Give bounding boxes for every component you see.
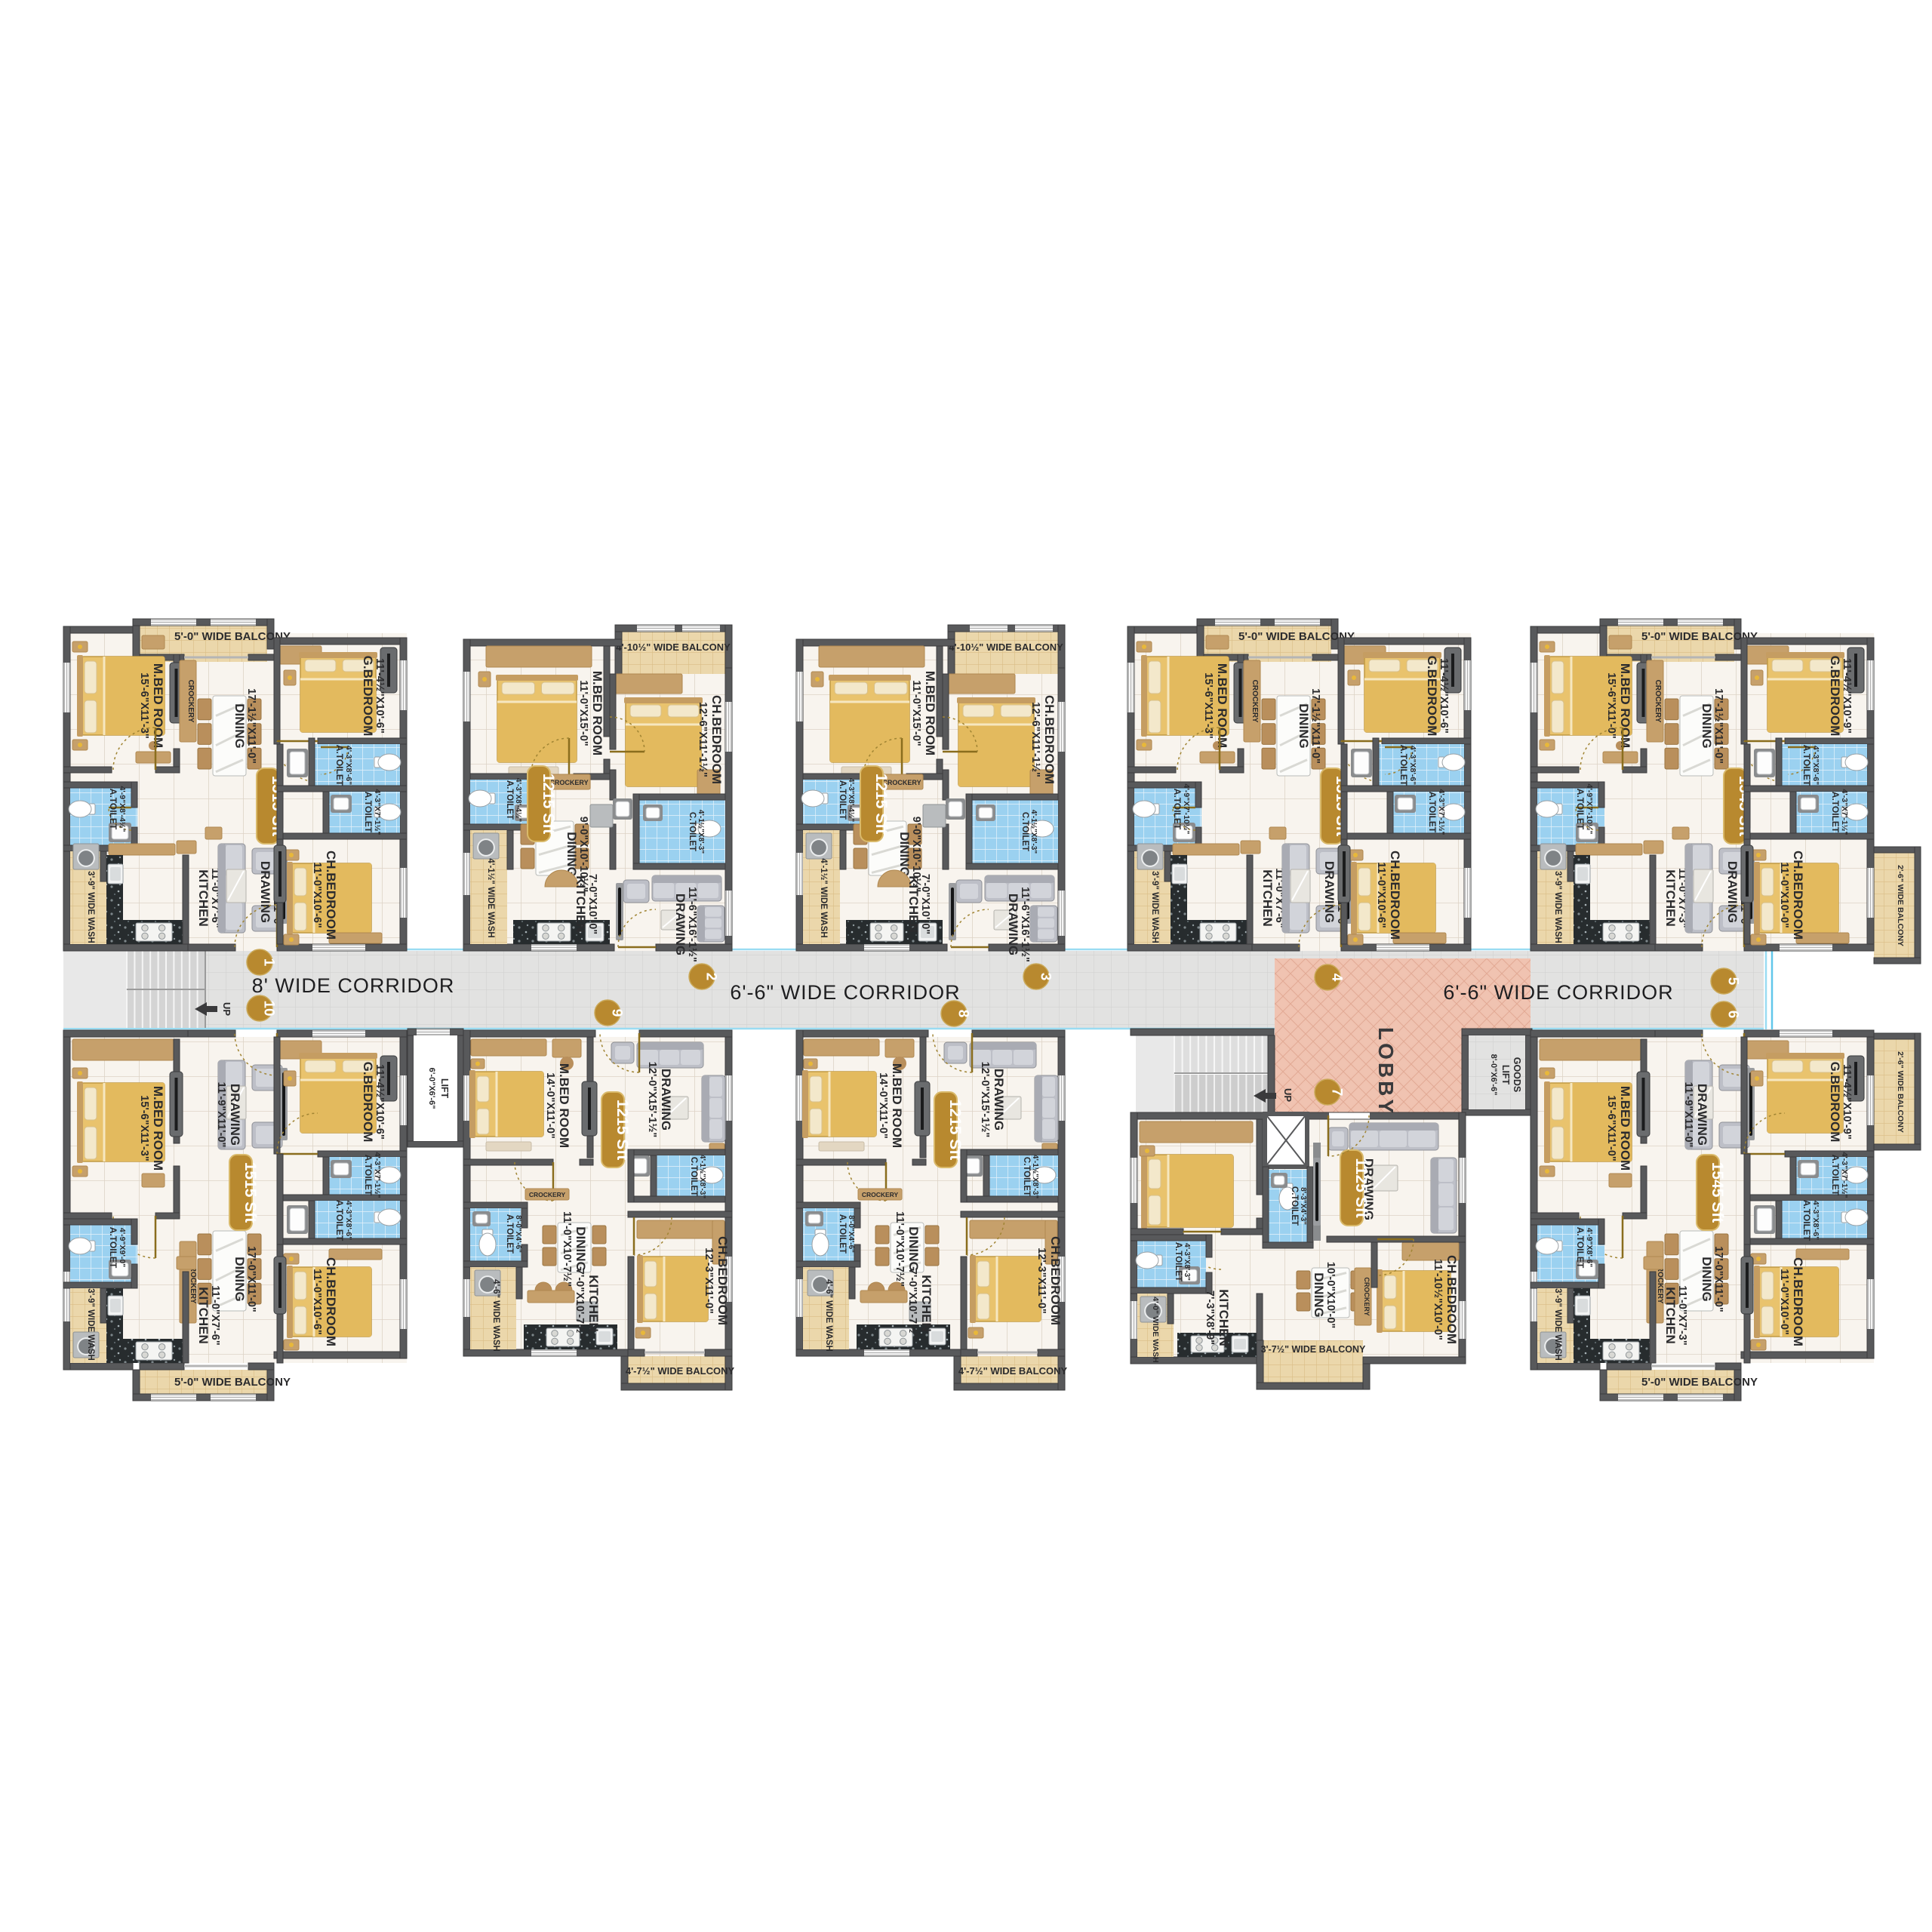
svg-text:A.TOILET: A.TOILET (108, 789, 118, 830)
svg-text:CH.BEDROOM: CH.BEDROOM (324, 1257, 338, 1346)
svg-text:5: 5 (1725, 977, 1741, 986)
svg-text:C.TOILET: C.TOILET (688, 812, 697, 851)
svg-text:8' WIDE CORRIDOR: 8' WIDE CORRIDOR (252, 974, 455, 997)
svg-text:C.TOILET: C.TOILET (1020, 812, 1029, 851)
svg-text:11'-4½"X10'-6": 11'-4½"X10'-6" (374, 658, 386, 734)
svg-text:12'-6"X11'-1½": 12'-6"X11'-1½" (697, 702, 709, 777)
svg-text:DINING: DINING (232, 1257, 247, 1302)
svg-text:11'-0"X10'-0": 11'-0"X10'-0" (1778, 862, 1790, 928)
svg-text:A.TOILET: A.TOILET (1830, 792, 1841, 833)
svg-text:A.TOILET: A.TOILET (1575, 1227, 1586, 1269)
svg-text:11'-0"X15'-0": 11'-0"X15'-0" (910, 680, 922, 746)
svg-text:3'-9" WIDE WASH: 3'-9" WIDE WASH (1150, 871, 1159, 943)
svg-text:CH.BEDROOM: CH.BEDROOM (709, 695, 724, 784)
svg-text:A.TOILET: A.TOILET (108, 1227, 118, 1269)
svg-text:3'-7½" WIDE BALCONY: 3'-7½" WIDE BALCONY (1261, 1344, 1366, 1355)
svg-text:CROCKERY: CROCKERY (529, 1191, 566, 1198)
svg-text:4'-9"X8'-4½": 4'-9"X8'-4½" (118, 786, 127, 832)
svg-text:4'-3"X7'-1½": 4'-3"X7'-1½" (373, 1152, 382, 1198)
svg-text:CH.BEDROOM: CH.BEDROOM (1444, 1255, 1459, 1344)
svg-text:3'-9" WIDE WASH: 3'-9" WIDE WASH (1553, 871, 1562, 943)
svg-text:11'-9"X11'-0": 11'-9"X11'-0" (215, 1082, 227, 1148)
svg-text:8'-0"X6'-6": 8'-0"X6'-6" (1489, 1054, 1498, 1096)
svg-text:DRAWING: DRAWING (1322, 861, 1337, 923)
svg-text:5'-0" WIDE BALCONY: 5'-0" WIDE BALCONY (174, 1376, 291, 1389)
svg-text:4'-1½"X8'-3": 4'-1½"X8'-3" (1031, 1155, 1039, 1198)
svg-text:4'-3"X7'-1½": 4'-3"X7'-1½" (1437, 789, 1446, 835)
svg-text:4'-3"X7'-1½": 4'-3"X7'-1½" (1840, 789, 1849, 835)
svg-text:11'-6"X16'-1½": 11'-6"X16'-1½" (1019, 887, 1031, 962)
svg-text:4'-3"X8'-3": 4'-3"X8'-3" (1183, 1243, 1191, 1281)
svg-text:11'-0"X10'-7½": 11'-0"X10'-7½" (894, 1211, 906, 1287)
svg-text:11'-4½"X10'-9": 11'-4½"X10'-9" (1841, 658, 1853, 734)
svg-text:4'-7½" WIDE BALCONY: 4'-7½" WIDE BALCONY (626, 1365, 735, 1377)
svg-text:4'-3"X7'-1½": 4'-3"X7'-1½" (1840, 1152, 1849, 1198)
svg-text:KITCHEN: KITCHEN (1663, 1287, 1678, 1344)
svg-text:KITCHEN: KITCHEN (906, 875, 921, 933)
svg-text:7'-0"X10'-7½": 7'-0"X10'-7½" (574, 1269, 586, 1338)
svg-text:KITCHEN: KITCHEN (919, 1275, 934, 1332)
svg-text:11'-4½"X10'-9": 11'-4½"X10'-9" (1841, 1064, 1853, 1140)
svg-text:4'-7½" WIDE BALCONY: 4'-7½" WIDE BALCONY (958, 1365, 1068, 1377)
svg-text:M.BED ROOM: M.BED ROOM (151, 663, 165, 748)
svg-text:1: 1 (261, 958, 277, 967)
svg-text:11'-0"X7'-6": 11'-0"X7'-6" (209, 1285, 221, 1346)
svg-text:4'-6" WIDE WASH: 4'-6" WIDE WASH (491, 1279, 500, 1352)
svg-text:3'-9" WIDE WASH: 3'-9" WIDE WASH (1553, 1288, 1562, 1361)
svg-text:14'-0"X11'-0": 14'-0"X11'-0" (877, 1072, 889, 1139)
svg-text:11'-0"X10'-6": 11'-0"X10'-6" (1375, 862, 1387, 928)
svg-text:14'-0"X11'-0": 14'-0"X11'-0" (544, 1072, 556, 1139)
svg-text:A.TOILET: A.TOILET (363, 792, 374, 833)
svg-text:DRAWING: DRAWING (1725, 861, 1740, 923)
svg-text:CH.BEDROOM: CH.BEDROOM (324, 851, 338, 940)
svg-text:4: 4 (1329, 974, 1345, 982)
svg-text:G.BEDROOM: G.BEDROOM (1828, 656, 1842, 737)
svg-text:11'-0"X15'-0": 11'-0"X15'-0" (577, 680, 589, 746)
svg-text:CH.BEDROOM: CH.BEDROOM (1048, 1236, 1063, 1325)
svg-text:7'-0"X10'-0": 7'-0"X10'-0" (919, 874, 931, 934)
svg-text:KITCHEN: KITCHEN (196, 1287, 211, 1344)
svg-text:CROCKERY: CROCKERY (862, 1191, 899, 1198)
svg-text:7'-3"X8'-9": 7'-3"X8'-9" (1204, 1291, 1216, 1345)
svg-text:4'-3"X7'-1½": 4'-3"X7'-1½" (373, 789, 382, 835)
svg-text:4'-3"X8'-4½": 4'-3"X8'-4½" (847, 778, 855, 822)
svg-text:A.TOILET: A.TOILET (334, 1200, 345, 1241)
svg-text:3: 3 (1038, 973, 1054, 981)
svg-text:17'-0"X11'-0": 17'-0"X11'-0" (1712, 1246, 1724, 1312)
svg-text:DINING: DINING (1312, 1272, 1326, 1318)
svg-text:15'-6"X11'-3": 15'-6"X11'-3" (138, 1095, 150, 1161)
svg-text:DRAWING: DRAWING (659, 1069, 673, 1131)
svg-text:A.TOILET: A.TOILET (505, 1214, 514, 1254)
svg-text:17'-1½"X11'-0": 17'-1½"X11'-0" (1712, 688, 1724, 764)
svg-text:DINING: DINING (232, 703, 247, 749)
svg-text:A.TOILET: A.TOILET (1172, 789, 1183, 830)
svg-text:11'-4½"X10'-6": 11'-4½"X10'-6" (374, 1064, 386, 1140)
svg-text:KITCHEN: KITCHEN (586, 1275, 601, 1332)
svg-text:A.TOILET: A.TOILET (1174, 1242, 1183, 1281)
svg-text:A.TOILET: A.TOILET (1427, 792, 1438, 833)
svg-text:DRAWING: DRAWING (1006, 894, 1020, 955)
svg-text:UP: UP (1282, 1088, 1294, 1102)
svg-text:CH.BEDROOM: CH.BEDROOM (715, 1236, 730, 1325)
svg-text:4'-9"X8'-6": 4'-9"X8'-6" (1585, 1228, 1594, 1267)
svg-text:7'-0"X10'-0": 7'-0"X10'-0" (586, 874, 598, 934)
svg-text:1215 Sft: 1215 Sft (540, 774, 557, 835)
svg-text:6'-0"X6'-6": 6'-0"X6'-6" (427, 1068, 436, 1109)
svg-text:DINING: DINING (1700, 703, 1714, 749)
svg-text:CH.BEDROOM: CH.BEDROOM (1791, 1257, 1805, 1346)
svg-text:4'-3"X8'-4½": 4'-3"X8'-4½" (514, 778, 522, 822)
svg-text:UP: UP (221, 1002, 232, 1016)
svg-text:4'-10½" WIDE BALCONY: 4'-10½" WIDE BALCONY (616, 641, 731, 653)
svg-text:A.TOILET: A.TOILET (1575, 789, 1586, 830)
svg-text:A.TOILET: A.TOILET (1830, 1155, 1841, 1196)
svg-text:12'-3"X11'-0": 12'-3"X11'-0" (703, 1247, 715, 1314)
svg-text:4'-1½"X8'-3": 4'-1½"X8'-3" (1029, 810, 1038, 854)
svg-text:A.TOILET: A.TOILET (363, 1155, 374, 1196)
svg-text:G.BEDROOM: G.BEDROOM (361, 656, 375, 737)
svg-text:LIFT: LIFT (439, 1078, 450, 1099)
svg-text:G.BEDROOM: G.BEDROOM (361, 1062, 375, 1143)
svg-text:12'-3"X11'-0": 12'-3"X11'-0" (1035, 1247, 1048, 1314)
svg-text:A.TOILET: A.TOILET (334, 745, 345, 786)
svg-text:KITCHEN: KITCHEN (574, 875, 588, 933)
svg-text:LOBBY: LOBBY (1374, 1027, 1398, 1116)
svg-text:7'-0"X10'-7½": 7'-0"X10'-7½" (906, 1269, 918, 1338)
svg-text:KITCHEN: KITCHEN (1217, 1289, 1231, 1346)
svg-text:CROCKERY: CROCKERY (1363, 1277, 1371, 1315)
svg-text:9: 9 (609, 1009, 625, 1017)
svg-text:4'-6" WIDE WASH: 4'-6" WIDE WASH (824, 1279, 833, 1352)
svg-text:M.BED ROOM: M.BED ROOM (590, 671, 605, 755)
svg-text:DINING: DINING (565, 832, 579, 877)
svg-text:4'-9"X9'-0": 4'-9"X9'-0" (118, 1228, 127, 1267)
svg-text:M.BED ROOM: M.BED ROOM (1215, 663, 1229, 748)
svg-text:A.TOILET: A.TOILET (1398, 745, 1409, 786)
svg-text:17'-1½"X11'-0": 17'-1½"X11'-0" (1309, 688, 1321, 764)
svg-text:4'-1½" WIDE WASH: 4'-1½" WIDE WASH (486, 858, 495, 937)
svg-text:3'-9" WIDE WASH: 3'-9" WIDE WASH (86, 1288, 95, 1361)
svg-text:8'-0"X4'-6": 8'-0"X4'-6" (847, 1215, 855, 1253)
svg-text:8'-3"X4'-3": 8'-3"X4'-3" (1299, 1187, 1307, 1225)
svg-text:2'-6" WIDE BALCONY: 2'-6" WIDE BALCONY (1896, 865, 1905, 946)
svg-text:6'-6" WIDE CORRIDOR: 6'-6" WIDE CORRIDOR (1443, 981, 1673, 1004)
svg-text:M.BED ROOM: M.BED ROOM (890, 1063, 904, 1148)
svg-text:DINING: DINING (906, 1226, 921, 1272)
svg-text:2'-6" WIDE BALCONY: 2'-6" WIDE BALCONY (1896, 1051, 1905, 1133)
svg-text:A.TOILET: A.TOILET (1801, 1200, 1812, 1241)
svg-text:8'-0"X4'-6": 8'-0"X4'-6" (514, 1215, 522, 1253)
svg-text:GOODS: GOODS (1512, 1057, 1522, 1093)
svg-text:4'-3"X8'-6": 4'-3"X8'-6" (1811, 1201, 1820, 1240)
svg-text:4'-3"X8'-6": 4'-3"X8'-6" (344, 1201, 353, 1240)
svg-text:CROCKERY: CROCKERY (1251, 680, 1259, 723)
svg-text:8: 8 (955, 1010, 971, 1018)
svg-text:A.TOILET: A.TOILET (1801, 745, 1812, 786)
svg-text:A.TOILET: A.TOILET (838, 780, 847, 820)
svg-text:G.BEDROOM: G.BEDROOM (1828, 1062, 1842, 1143)
svg-text:KITCHEN: KITCHEN (1260, 869, 1275, 927)
svg-text:DINING: DINING (574, 1226, 588, 1272)
svg-text:2: 2 (703, 973, 719, 981)
svg-text:A.TOILET: A.TOILET (838, 1214, 847, 1254)
svg-text:4'-1½"X8'-3": 4'-1½"X8'-3" (697, 810, 705, 854)
svg-text:DINING: DINING (897, 832, 912, 877)
svg-text:1125 Sft: 1125 Sft (1352, 1158, 1370, 1217)
svg-text:G.BEDROOM: G.BEDROOM (1425, 656, 1439, 737)
svg-text:4'-3"X8'-6": 4'-3"X8'-6" (344, 746, 353, 785)
svg-text:C.TOILET: C.TOILET (1022, 1157, 1031, 1196)
svg-text:DRAWING: DRAWING (1695, 1084, 1709, 1146)
svg-text:5'-0" WIDE BALCONY: 5'-0" WIDE BALCONY (174, 630, 291, 643)
svg-text:11'-0"X10'-7½": 11'-0"X10'-7½" (561, 1211, 573, 1287)
svg-text:C.TOILET: C.TOILET (1290, 1186, 1299, 1226)
svg-text:1545 Sft: 1545 Sft (1709, 1162, 1726, 1223)
svg-text:1215 Sft: 1215 Sft (872, 774, 890, 835)
svg-text:5'-0" WIDE BALCONY: 5'-0" WIDE BALCONY (1641, 1376, 1758, 1389)
svg-text:CROCKERY: CROCKERY (1654, 680, 1662, 723)
svg-text:4'-1½" WIDE WASH: 4'-1½" WIDE WASH (819, 858, 828, 937)
svg-text:LIFT: LIFT (1500, 1065, 1511, 1085)
svg-text:4'-9"X7'-10½": 4'-9"X7'-10½" (1182, 784, 1191, 835)
svg-text:7: 7 (1329, 1088, 1345, 1097)
svg-text:11'-9"X11'-0": 11'-9"X11'-0" (1682, 1082, 1694, 1148)
svg-text:5'-0" WIDE BALCONY: 5'-0" WIDE BALCONY (1238, 630, 1355, 643)
svg-text:A.TOILET: A.TOILET (505, 780, 514, 820)
svg-text:DRAWING: DRAWING (258, 861, 272, 923)
svg-text:6'-6" WIDE CORRIDOR: 6'-6" WIDE CORRIDOR (730, 981, 960, 1004)
svg-text:4'-10½" WIDE BALCONY: 4'-10½" WIDE BALCONY (949, 641, 1063, 653)
svg-text:11'-0"X10'-6": 11'-0"X10'-6" (311, 862, 323, 928)
svg-text:11'-6"X16'-1½": 11'-6"X16'-1½" (686, 887, 698, 962)
svg-text:C.TOILET: C.TOILET (689, 1157, 698, 1196)
svg-text:CROCKERY: CROCKERY (186, 680, 195, 723)
svg-text:CH.BEDROOM: CH.BEDROOM (1791, 851, 1805, 940)
svg-text:KITCHEN: KITCHEN (196, 869, 211, 927)
svg-text:CH.BEDROOM: CH.BEDROOM (1388, 851, 1402, 940)
svg-text:5'-0" WIDE BALCONY: 5'-0" WIDE BALCONY (1641, 630, 1758, 643)
svg-text:11'-0"X7'-3": 11'-0"X7'-3" (1676, 1285, 1688, 1346)
svg-text:10'-0"X10'-0": 10'-0"X10'-0" (1324, 1262, 1337, 1328)
svg-text:1515 Sft: 1515 Sft (241, 1162, 259, 1223)
svg-text:4'-0" WIDE WASH: 4'-0" WIDE WASH (1151, 1297, 1160, 1362)
svg-text:KITCHEN: KITCHEN (1663, 869, 1678, 927)
svg-text:15'-6"X11'-0": 15'-6"X11'-0" (1605, 1095, 1617, 1161)
svg-text:DINING: DINING (1297, 703, 1311, 749)
svg-text:DRAWING: DRAWING (228, 1084, 242, 1146)
svg-text:DRAWING: DRAWING (992, 1069, 1006, 1131)
svg-text:DRAWING: DRAWING (673, 894, 688, 955)
svg-text:11'-0"X10'-6": 11'-0"X10'-6" (311, 1269, 323, 1335)
svg-text:M.BED ROOM: M.BED ROOM (1618, 663, 1632, 748)
svg-text:12'-0"X15'-1½": 12'-0"X15'-1½" (646, 1062, 658, 1137)
svg-text:12'-0"X15'-1½": 12'-0"X15'-1½" (979, 1062, 991, 1137)
svg-text:4'-3"X8'-6": 4'-3"X8'-6" (1811, 746, 1820, 785)
svg-text:4'-3"X8'-6": 4'-3"X8'-6" (1408, 746, 1417, 785)
svg-text:17'-1½"X11'-0": 17'-1½"X11'-0" (245, 688, 257, 764)
svg-text:3'-9" WIDE WASH: 3'-9" WIDE WASH (86, 871, 95, 943)
svg-text:M.BED ROOM: M.BED ROOM (923, 671, 937, 755)
svg-text:CH.BEDROOM: CH.BEDROOM (1042, 695, 1057, 784)
svg-text:M.BED ROOM: M.BED ROOM (151, 1086, 165, 1171)
svg-text:M.BED ROOM: M.BED ROOM (557, 1063, 571, 1148)
svg-text:10: 10 (261, 1000, 277, 1016)
svg-text:12'-6"X11'-1½": 12'-6"X11'-1½" (1029, 702, 1041, 777)
svg-text:4'-1½"X8'-3": 4'-1½"X8'-3" (698, 1155, 706, 1198)
svg-text:M.BED ROOM: M.BED ROOM (1618, 1086, 1632, 1171)
svg-text:11'-4½"X10'-6": 11'-4½"X10'-6" (1438, 658, 1450, 734)
svg-text:DINING: DINING (1700, 1257, 1714, 1302)
svg-text:6: 6 (1725, 1011, 1741, 1019)
svg-text:11'-0"X10'-0": 11'-0"X10'-0" (1778, 1269, 1790, 1335)
svg-text:11'-10½"X10'-0": 11'-10½"X10'-0" (1432, 1259, 1444, 1340)
svg-text:4'-9"X7'-10½": 4'-9"X7'-10½" (1585, 784, 1594, 835)
svg-text:17'-0"X11'-0": 17'-0"X11'-0" (245, 1246, 257, 1312)
